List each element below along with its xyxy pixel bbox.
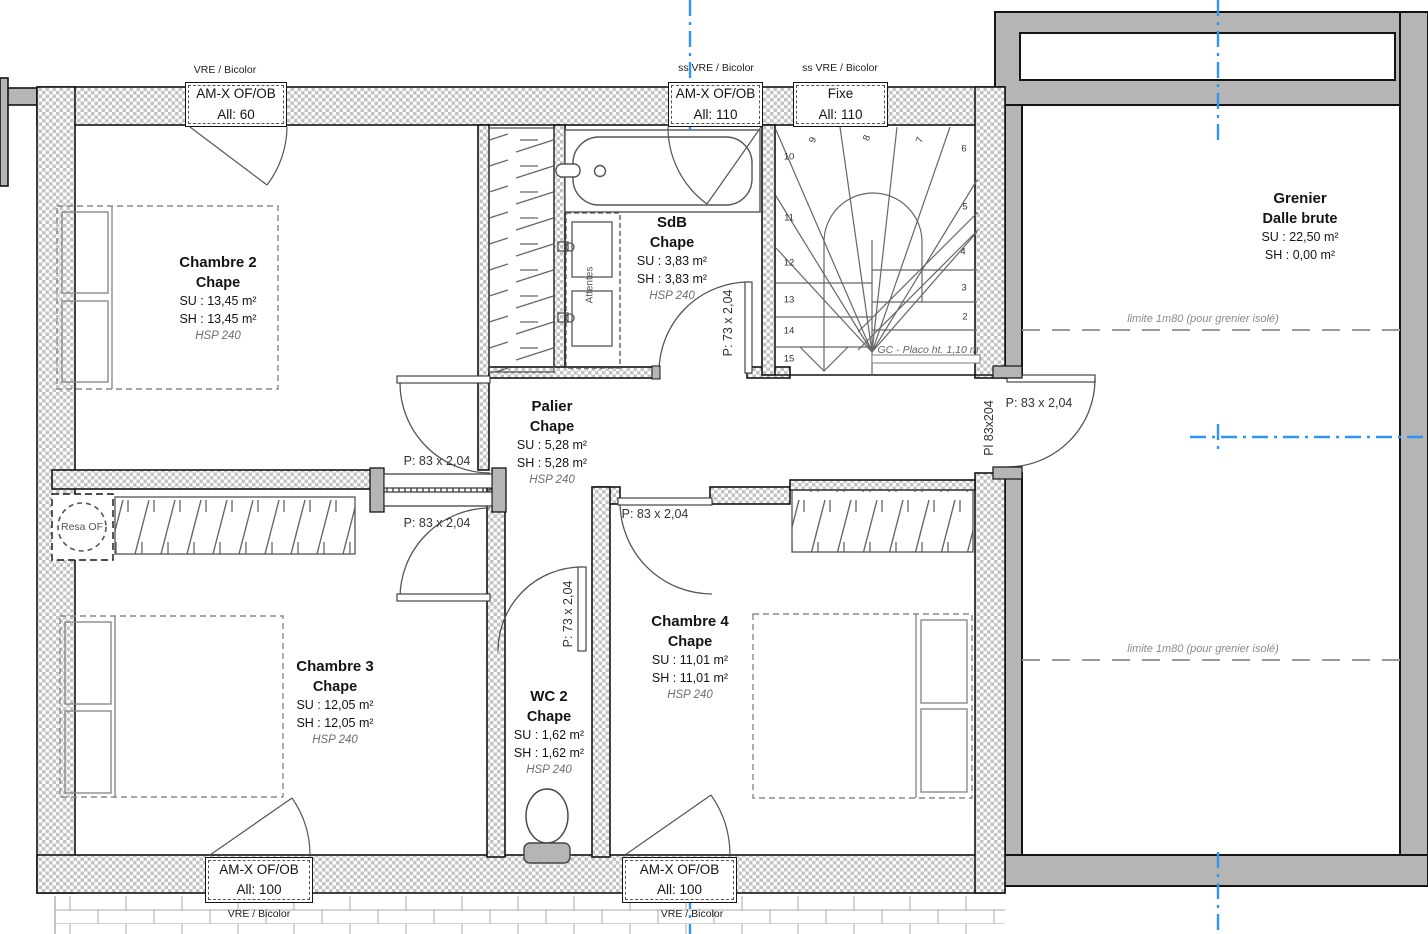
window-top-fixe-callout: Fixe All: 110: [793, 82, 888, 127]
window-sill-height: All: 100: [236, 880, 281, 900]
wall-left: [37, 87, 75, 893]
room-label-chambre2: Chambre 2 Chape SU : 13,45 m² SH : 13,45…: [179, 252, 257, 344]
wall-bottom: [37, 855, 1005, 893]
window-label: AM-X OF/OB: [196, 84, 276, 104]
room-name: WC 2: [514, 686, 584, 707]
window-label: AM-X OF/OB: [640, 860, 720, 880]
window-sill-height: All: 60: [217, 105, 255, 125]
stair-step-2: 2: [962, 312, 967, 323]
room-name: Chambre 3: [296, 656, 374, 677]
room-finish: Chape: [651, 632, 729, 652]
wall-mid-horizontal: [52, 470, 378, 489]
stair-guard-gc: [872, 355, 980, 363]
room-name: Chambre 4: [651, 611, 729, 632]
bed-chambre4: [753, 614, 972, 798]
grenier-gable-window: [1020, 33, 1395, 80]
room-label-grenier: Grenier Dalle brute SU : 22,50 m² SH : 0…: [1261, 188, 1338, 264]
window-bottom-mid-tag: VRE / Bicolor: [661, 908, 723, 920]
room-su: SU : 13,45 m²: [179, 293, 257, 311]
room-sh: SH : 12,05 m²: [296, 715, 374, 733]
room-sh: SH : 1,62 m²: [514, 745, 584, 763]
room-finish: Chape: [179, 273, 257, 293]
room-name: SdB: [637, 212, 707, 233]
room-hsp: HSP 240: [517, 472, 587, 488]
toilet: [524, 789, 570, 863]
room-finish: Dalle brute: [1261, 209, 1338, 229]
resa-of-label: Resa OF: [61, 521, 103, 533]
room-finish: Chape: [514, 707, 584, 727]
window-label: AM-X OF/OB: [219, 860, 299, 880]
door-label-sdb: P: 73 x 2,04: [721, 290, 735, 357]
room-name: Palier: [517, 396, 587, 417]
door-label-chambre4: P: 83 x 2,04: [622, 507, 689, 521]
room-finish: Chape: [517, 417, 587, 437]
stair-step-13: 13: [784, 295, 795, 306]
window-label: Fixe: [828, 84, 854, 104]
door-label-wc2: P: 73 x 2,04: [561, 581, 575, 648]
window-top-left-callout: AM-X OF/OB All: 60: [185, 82, 287, 127]
wall-right-upper: [975, 87, 1005, 378]
window-top-left-tag: VRE / Bicolor: [194, 64, 256, 76]
room-su: SU : 1,62 m²: [514, 727, 584, 745]
wall-wc-left: [487, 489, 505, 857]
room-label-sdb: SdB Chape SU : 3,83 m² SH : 3,83 m² HSP …: [637, 212, 707, 304]
door-label-chambre2: P: 83 x 2,04: [404, 454, 471, 468]
swing-window-top-left: [190, 127, 287, 185]
wall-right-lower: [975, 473, 1005, 893]
stair-step-11: 11: [784, 213, 794, 224]
plan-drawing: [0, 0, 1428, 934]
room-label-palier: Palier Chape SU : 5,28 m² SH : 5,28 m² H…: [517, 396, 587, 488]
window-bottom-left-callout: AM-X OF/OB All: 100: [205, 857, 313, 903]
swing-window-bottom-mid: [625, 795, 730, 855]
room-su: SU : 11,01 m²: [651, 652, 729, 670]
wall-wc-right: [592, 487, 610, 857]
room-su: SU : 5,28 m²: [517, 437, 587, 455]
room-su: SU : 3,83 m²: [637, 253, 707, 271]
stair-step-5: 5: [962, 202, 967, 213]
stair-step-15: 15: [784, 354, 795, 365]
room-sh: SH : 3,83 m²: [637, 271, 707, 289]
room-hsp: HSP 240: [514, 762, 584, 778]
window-sill-height: All: 110: [693, 105, 737, 125]
window-label: AM-X OF/OB: [676, 84, 756, 104]
room-sh: SH : 11,01 m²: [651, 670, 729, 688]
wall-closetB-top: [790, 480, 975, 490]
door-label-grenier: P: 83 x 2,04: [1006, 396, 1073, 410]
wall-chambre2-right: [478, 125, 489, 470]
room-hsp: HSP 240: [179, 328, 257, 344]
room-su: SU : 22,50 m²: [1261, 229, 1338, 247]
wall-stair-left: [762, 125, 775, 375]
window-sill-height: All: 100: [657, 880, 702, 900]
room-sh: SH : 5,28 m²: [517, 455, 587, 473]
stair-step-3: 3: [961, 283, 966, 294]
wall-closet-strip-right: [554, 125, 565, 375]
room-hsp: HSP 240: [651, 687, 729, 703]
swing-window-bottom-left: [210, 798, 310, 855]
window-bottom-mid-callout: AM-X OF/OB All: 100: [622, 857, 737, 903]
stair-step-6: 6: [961, 144, 966, 155]
stair-step-10: 10: [784, 152, 795, 163]
wall-palier-bottom-b: [710, 487, 790, 504]
stairs: [776, 127, 978, 375]
floor-plan-page: { "colors": { "wall_gray": "#b5b5b5", "w…: [0, 0, 1428, 934]
room-sh: SH : 0,00 m²: [1261, 247, 1338, 265]
door-grenier: [993, 366, 1095, 479]
window-top-fixe-tag: ss VRE / Bicolor: [802, 62, 878, 74]
stair-step-12: 12: [784, 258, 795, 269]
limite-grenier-label-2: limite 1m80 (pour grenier isolé): [1127, 643, 1279, 655]
closet-chambre3: [115, 497, 355, 554]
closet-strip-chambre2: [489, 128, 554, 372]
room-hsp: HSP 240: [296, 732, 374, 748]
window-top-mid-callout: AM-X OF/OB All: 110: [668, 82, 763, 127]
room-label-chambre4: Chambre 4 Chape SU : 11,01 m² SH : 11,01…: [651, 611, 729, 703]
room-finish: Chape: [296, 677, 374, 697]
room-name: Chambre 2: [179, 252, 257, 273]
limite-grenier-label-1: limite 1m80 (pour grenier isolé): [1127, 313, 1279, 325]
window-bottom-left-tag: VRE / Bicolor: [228, 908, 290, 920]
room-hsp: HSP 240: [637, 288, 707, 304]
stair-step-14: 14: [784, 326, 795, 337]
attentes-label: Attentes: [585, 267, 596, 304]
stair-step-4: 4: [960, 247, 965, 258]
room-label-chambre3: Chambre 3 Chape SU : 12,05 m² SH : 12,05…: [296, 656, 374, 748]
grid-lines-blue: [690, 0, 1428, 934]
door-label-chambre3: P: 83 x 2,04: [404, 516, 471, 530]
room-finish: Chape: [637, 233, 707, 253]
room-sh: SH : 13,45 m²: [179, 311, 257, 329]
room-name: Grenier: [1261, 188, 1338, 209]
gc-placo-label: GC - Placo ht. 1,10 m: [878, 344, 979, 356]
left-wall-stubs: [0, 78, 37, 186]
door-label-grenier-vertical: Pl 83x204: [982, 400, 996, 456]
stair-rail: [858, 212, 978, 350]
window-sill-height: All: 110: [818, 105, 862, 125]
room-su: SU : 12,05 m²: [296, 697, 374, 715]
window-top-mid-tag: ss VRE / Bicolor: [678, 62, 754, 74]
double-door-assembly: [370, 468, 506, 512]
closet-chambre4: [792, 490, 973, 552]
lower-level-brick-band: [55, 896, 1005, 934]
room-label-wc2: WC 2 Chape SU : 1,62 m² SH : 1,62 m² HSP…: [514, 686, 584, 778]
bed-chambre3: [60, 616, 283, 797]
bathtub: [556, 130, 760, 212]
